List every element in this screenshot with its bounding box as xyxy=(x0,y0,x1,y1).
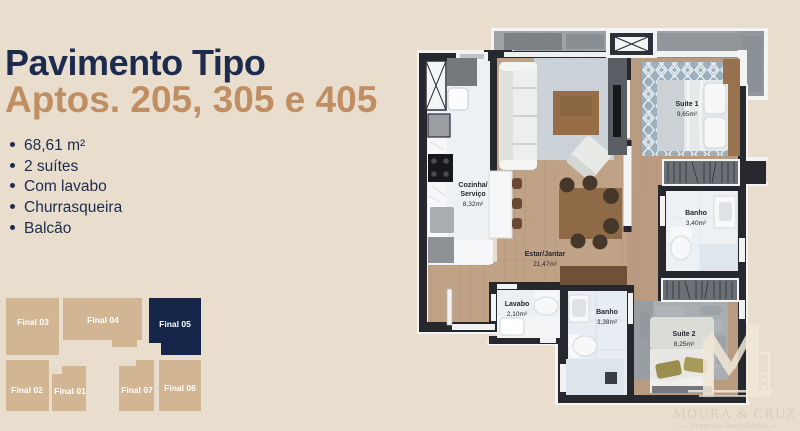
svg-text:— Negócios Imobiliários —: — Negócios Imobiliários — xyxy=(677,421,780,430)
svg-text:Estar/Jantar: Estar/Jantar xyxy=(525,251,566,258)
svg-text:Serviço: Serviço xyxy=(460,191,485,198)
svg-text:Suite 1: Suite 1 xyxy=(676,101,699,108)
svg-text:Final 01: Final 01 xyxy=(54,386,86,396)
svg-text:Final 02: Final 02 xyxy=(11,385,43,395)
svg-text:3,38m²: 3,38m² xyxy=(597,319,618,326)
svg-text:8,25m²: 8,25m² xyxy=(674,341,695,348)
svg-text:Lavabo: Lavabo xyxy=(505,301,530,308)
svg-text:Cozinha/: Cozinha/ xyxy=(458,182,487,189)
svg-text:Banho: Banho xyxy=(685,210,707,217)
svg-text:Final 05: Final 05 xyxy=(159,319,191,329)
svg-text:2,10m²: 2,10m² xyxy=(507,311,528,318)
svg-text:Final 07: Final 07 xyxy=(121,385,153,395)
svg-text:Final 03: Final 03 xyxy=(17,317,49,327)
svg-text:Suite 2: Suite 2 xyxy=(673,331,696,338)
svg-text:9,65m²: 9,65m² xyxy=(677,111,698,118)
svg-text:Final 04: Final 04 xyxy=(87,315,119,325)
svg-text:8,32m²: 8,32m² xyxy=(463,201,484,208)
svg-text:Final 06: Final 06 xyxy=(164,383,196,393)
svg-text:MOURA & CRUZ: MOURA & CRUZ xyxy=(673,407,796,422)
svg-text:21,47m²: 21,47m² xyxy=(533,261,558,268)
svg-text:Banho: Banho xyxy=(596,309,618,316)
svg-text:3,40m²: 3,40m² xyxy=(686,220,707,227)
